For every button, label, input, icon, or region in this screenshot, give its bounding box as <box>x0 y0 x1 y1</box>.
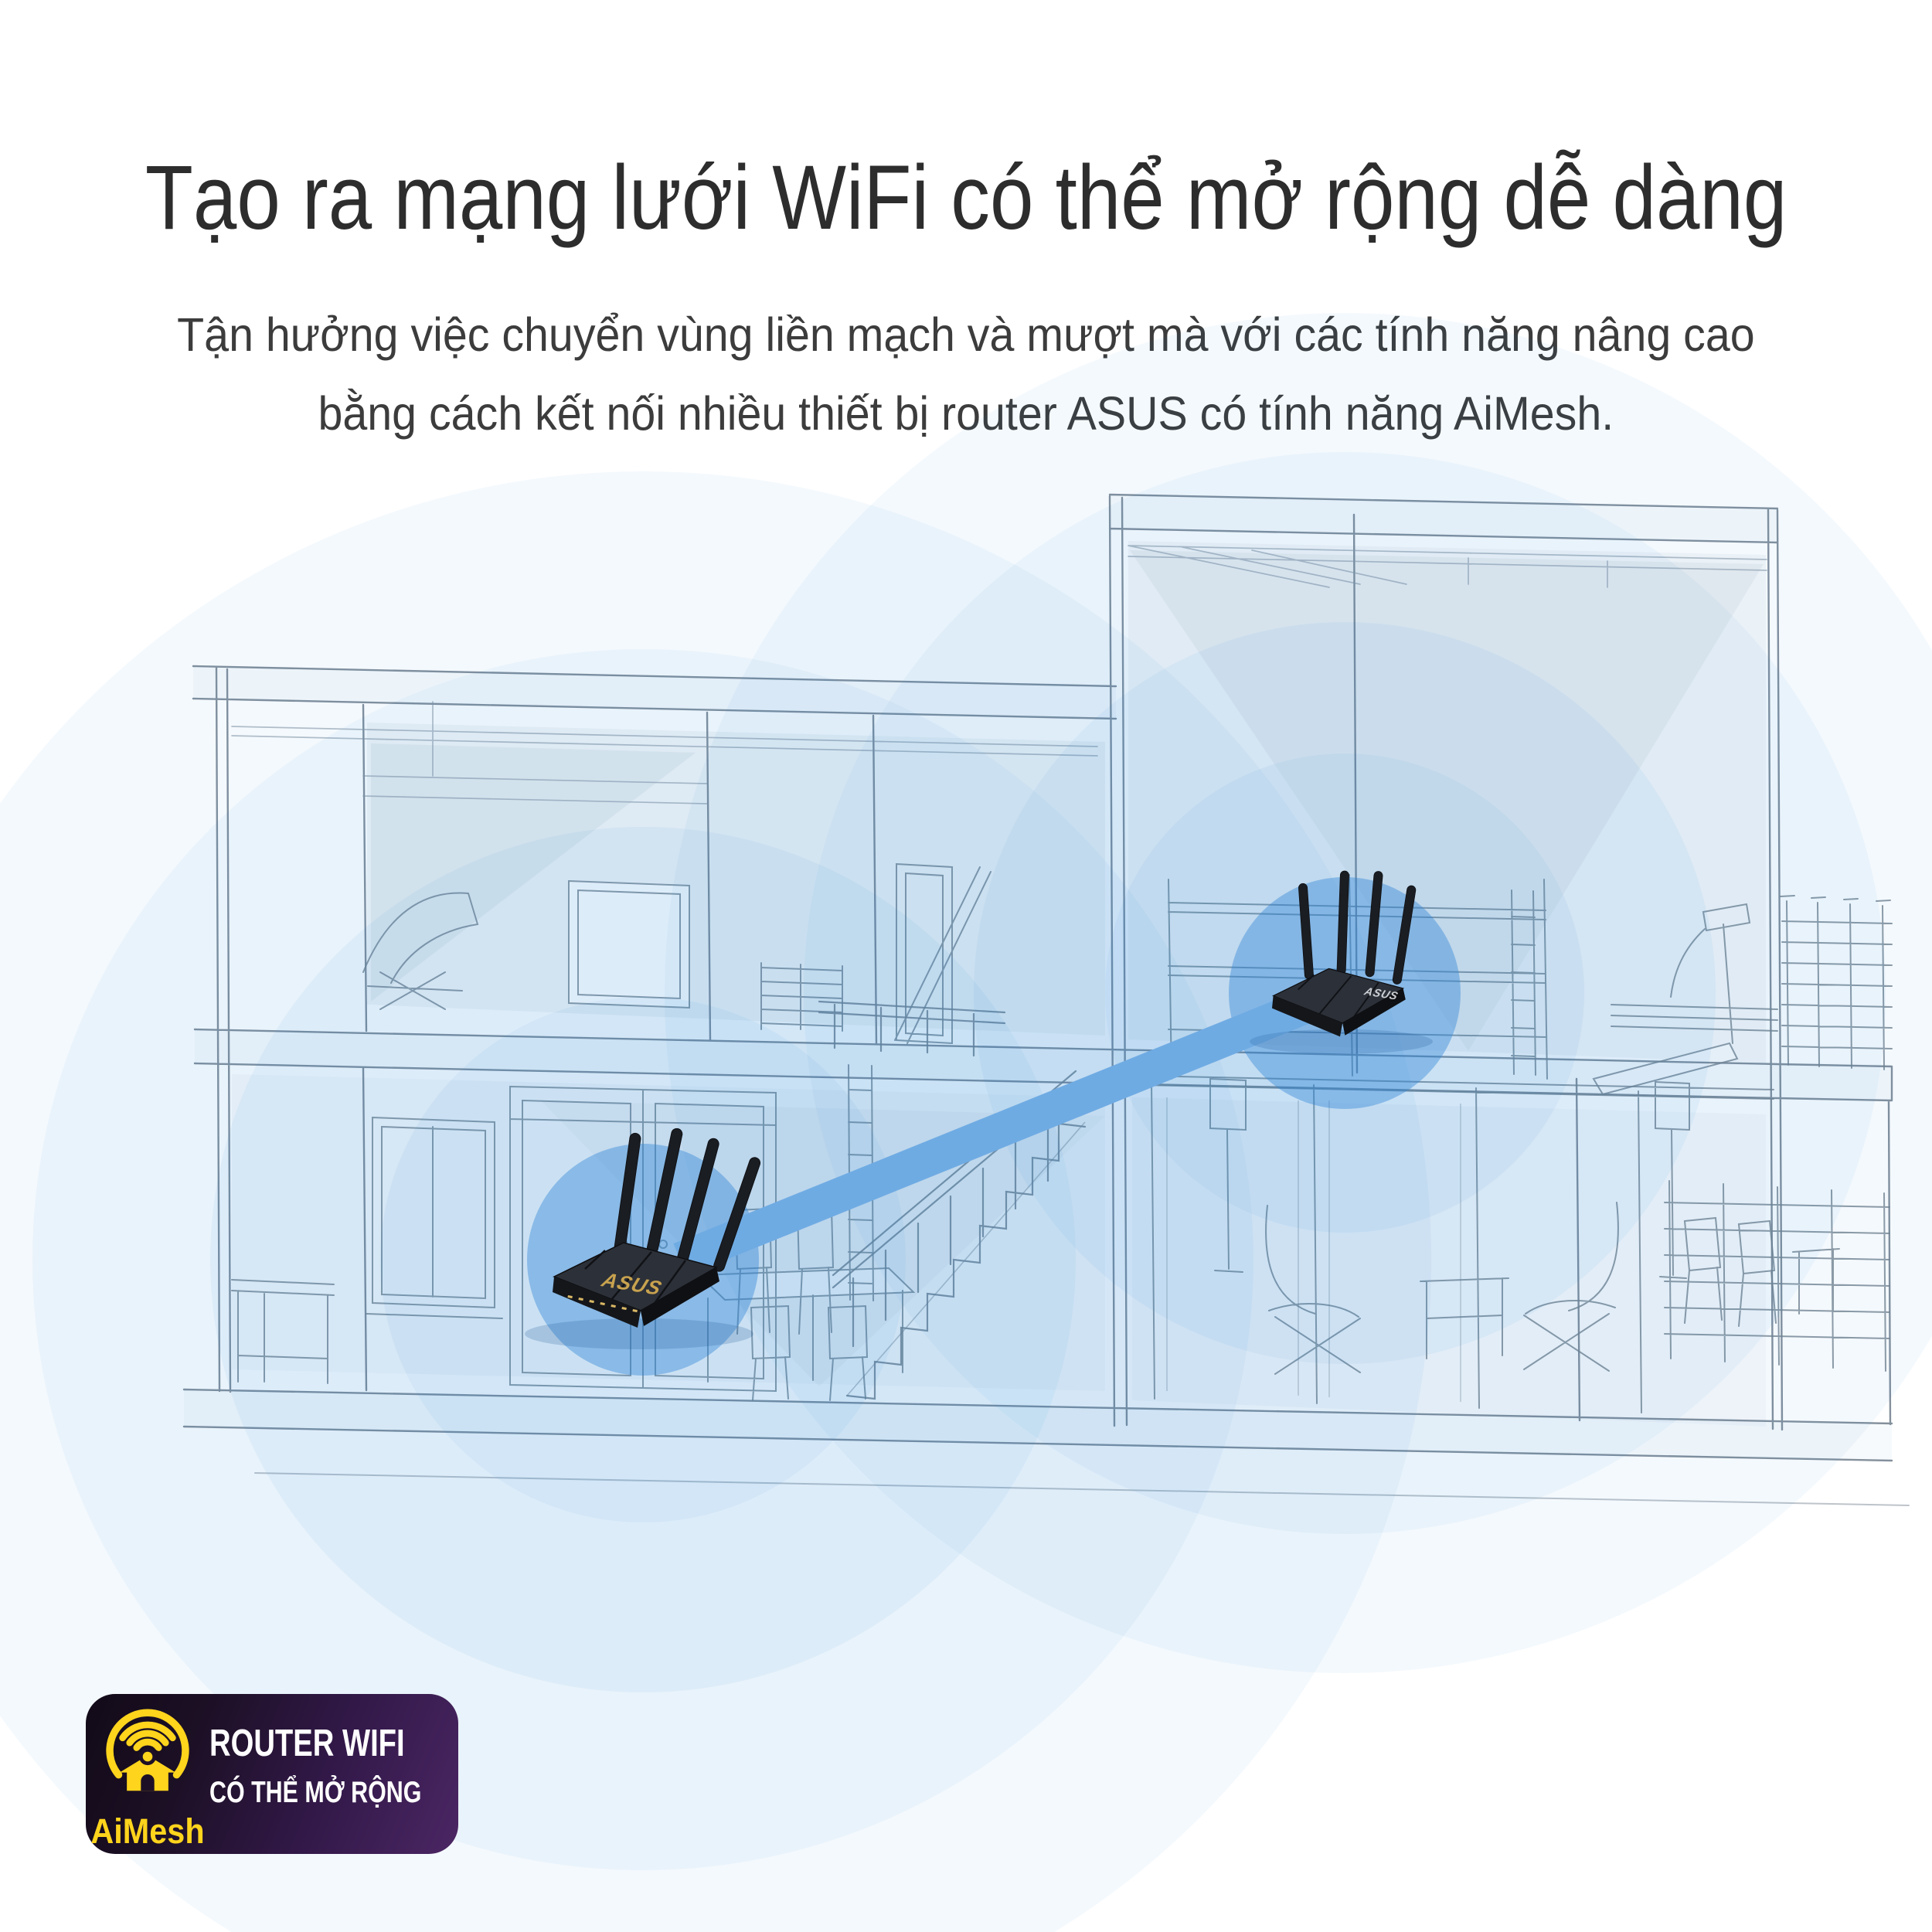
scene-illustration: ASUS ASUS <box>0 0 1932 1932</box>
wifi-coverage-rings <box>0 313 1932 1932</box>
page-root: { "header": { "title": "Tạo ra mạng lưới… <box>0 0 1932 1932</box>
badge-text-column: ROUTER WIFI CÓ THỂ MỞ RỘNG <box>209 1694 481 1854</box>
badge-title: ROUTER WIFI <box>209 1725 421 1763</box>
aimesh-badge: AiMesh ROUTER WIFI CÓ THỂ MỞ RỘNG <box>86 1694 458 1854</box>
aimesh-house-wifi-icon <box>90 1702 206 1818</box>
aimesh-brand-label: AiMesh <box>90 1811 204 1852</box>
aimesh-icon-column: AiMesh <box>86 1694 209 1854</box>
badge-subtitle: CÓ THỂ MỞ RỘNG <box>209 1776 421 1811</box>
